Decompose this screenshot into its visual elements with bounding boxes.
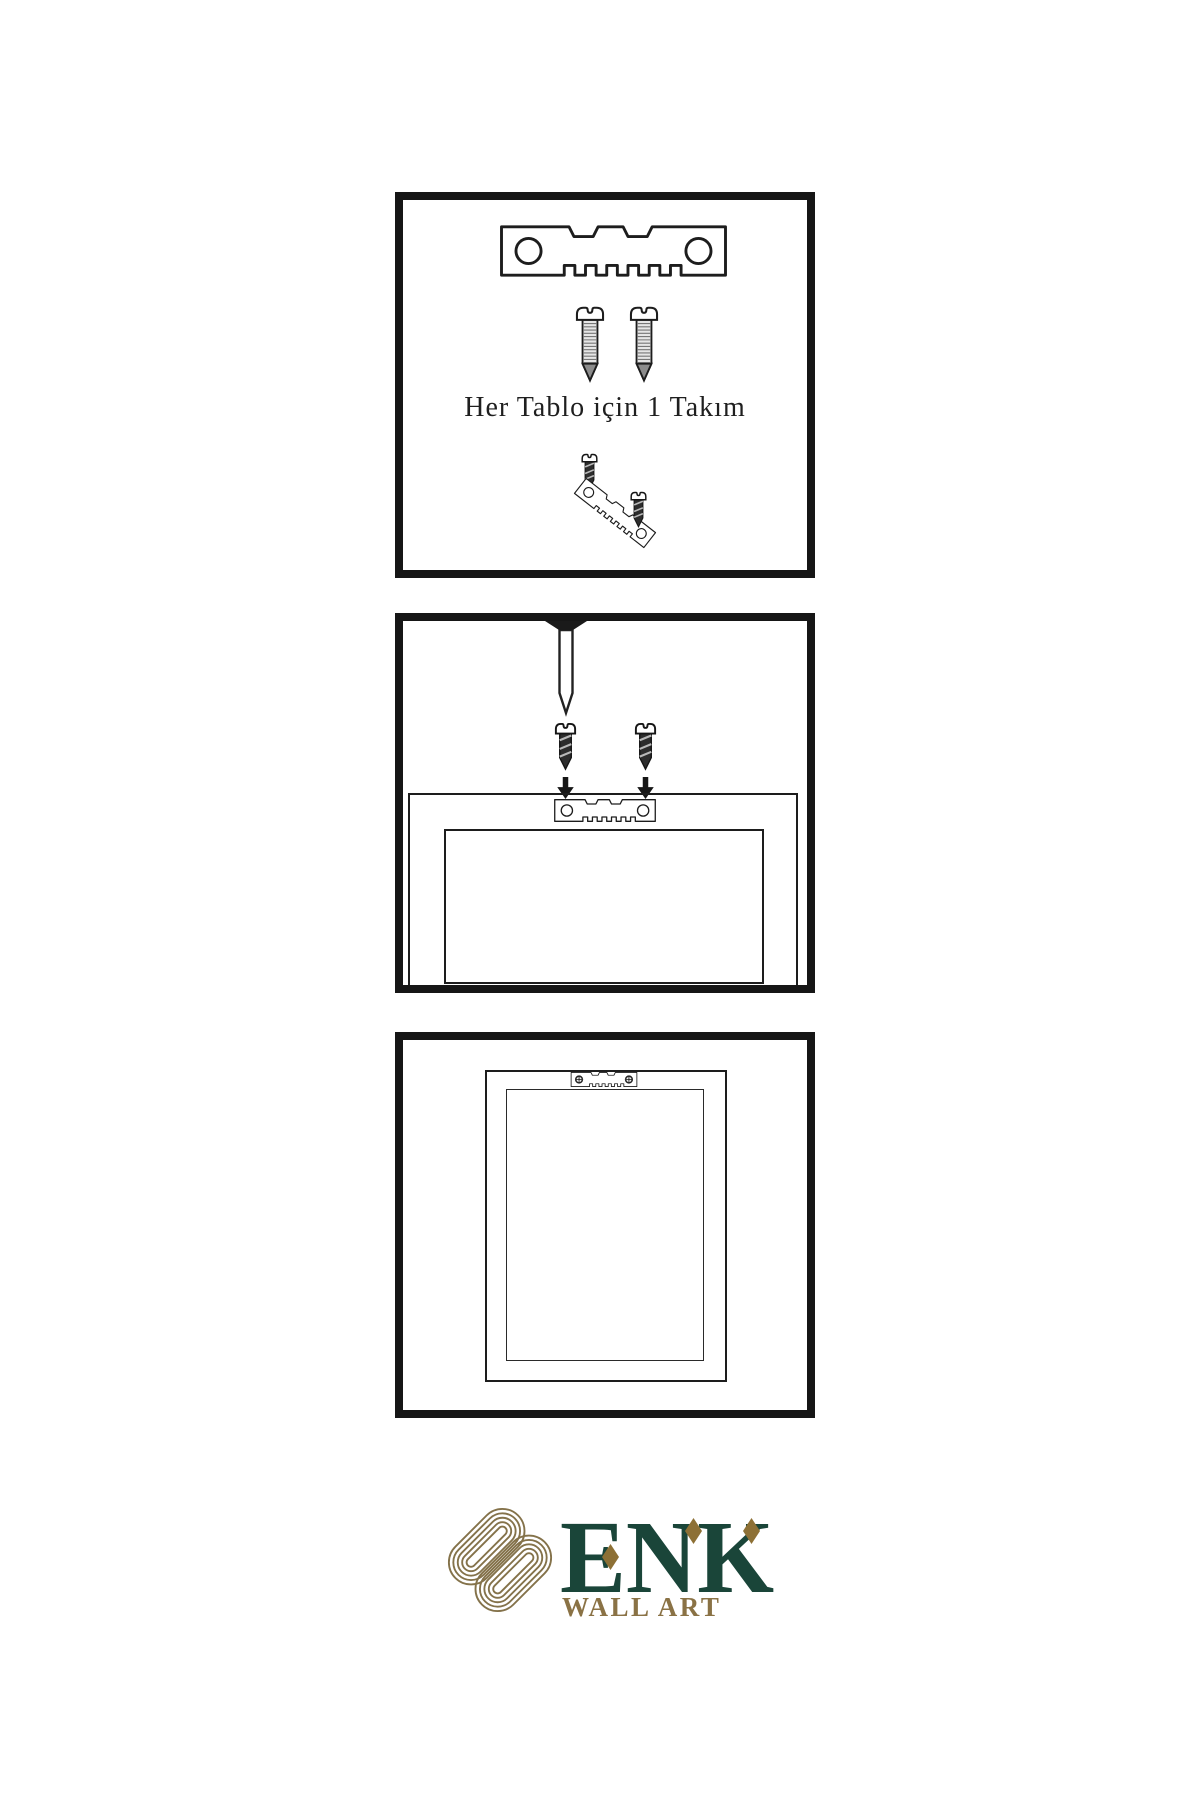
panel-hardware-set: Her Tablo için 1 Takım (395, 192, 815, 578)
frame-back-inner-panel (444, 829, 764, 984)
panel-mounting-step (395, 613, 815, 993)
set-caption: Her Tablo için 1 Takım (403, 393, 807, 423)
brand-subtitle: WALL ART (562, 1592, 822, 1622)
screw-icon (573, 304, 607, 386)
screw-icon (629, 490, 648, 530)
brand-knot-icon (438, 1498, 562, 1622)
screw-icon (633, 721, 658, 773)
screw-icon (627, 304, 661, 386)
screw-icon (553, 721, 578, 773)
sawtooth-hanger-icon (497, 223, 730, 279)
frame-back (485, 1070, 727, 1382)
sawtooth-hanger-screwed-icon (570, 1071, 638, 1088)
panel-hung-frame (395, 1032, 815, 1418)
instruction-sheet: Her Tablo için 1 Takım ENK WALL ART (0, 0, 1200, 1800)
frame-back-inner-panel (506, 1089, 704, 1361)
wall-nail-icon (543, 621, 589, 719)
sawtooth-hanger-icon (553, 797, 657, 824)
